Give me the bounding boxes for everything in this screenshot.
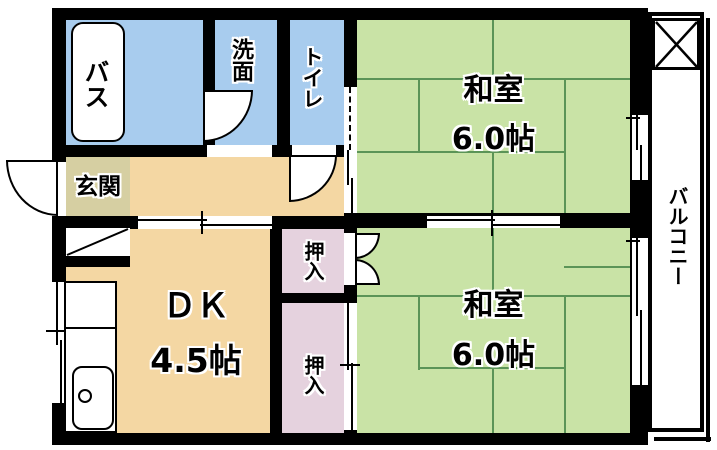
label-closet-top: 押入 [298, 230, 328, 292]
window-sash [636, 238, 638, 316]
sliding-door-sash [138, 219, 207, 221]
label-dk-name: ＤＫ [163, 286, 229, 325]
window-sash [640, 310, 642, 385]
label-dk-size: 4.5帖 [150, 341, 241, 380]
window-tick [626, 240, 640, 242]
window-sash [56, 282, 58, 345]
sliding-door-tick [491, 210, 493, 236]
balcony-hatch-box [652, 18, 700, 70]
label-washitsu-top: 和室 6.0帖 [357, 66, 630, 164]
entrance-door-swing [6, 160, 58, 216]
window-sash [640, 145, 642, 180]
sliding-door-sash [200, 224, 272, 226]
sliding-door-sash [351, 178, 353, 213]
label-dk: ＤＫ 4.5帖 [96, 278, 296, 388]
sliding-door-tick [201, 211, 203, 234]
label-balcony: バルコニー [660, 138, 692, 333]
label-washroom: 洗面 [226, 22, 256, 98]
label-closet-bottom: 押入 [298, 340, 328, 410]
kitchen-faucet [78, 389, 92, 403]
label-toilet: トイレ [297, 28, 327, 126]
sliding-door-sash [347, 150, 349, 185]
label-bath: バス [83, 38, 113, 130]
washroom-door-opening [207, 145, 272, 157]
washitsu-partition-sliding-door [427, 216, 560, 228]
hall-dk-sliding-door [138, 216, 272, 229]
balcony-outer-rail [654, 437, 711, 441]
label-washitsu-top-size: 6.0帖 [452, 122, 535, 157]
label-washitsu-top-name: 和室 [464, 73, 524, 108]
floor-plan: バス 洗面 トイレ 玄関 ＤＫ 4.5帖 和室 6.0帖 和室 6.0帖 押入 … [0, 0, 717, 450]
label-washitsu-bottom-name: 和室 [464, 288, 524, 323]
balcony-outer-rail [706, 18, 710, 442]
sliding-door-sash [427, 219, 495, 221]
label-washitsu-bottom: 和室 6.0帖 [357, 281, 630, 381]
window-tick [46, 330, 66, 332]
window-sash [60, 340, 62, 403]
wall-segment [66, 256, 130, 267]
label-washitsu-bottom-size: 6.0帖 [452, 338, 535, 373]
tatami-line [564, 266, 630, 268]
opening-dashed [344, 87, 357, 150]
sliding-door-sash [347, 303, 349, 370]
window-sash [636, 115, 638, 150]
sliding-door-sash [351, 363, 353, 430]
shoe-cabinet [66, 228, 130, 256]
sliding-door-sash [492, 224, 560, 226]
label-entrance: 玄関 [64, 173, 132, 201]
